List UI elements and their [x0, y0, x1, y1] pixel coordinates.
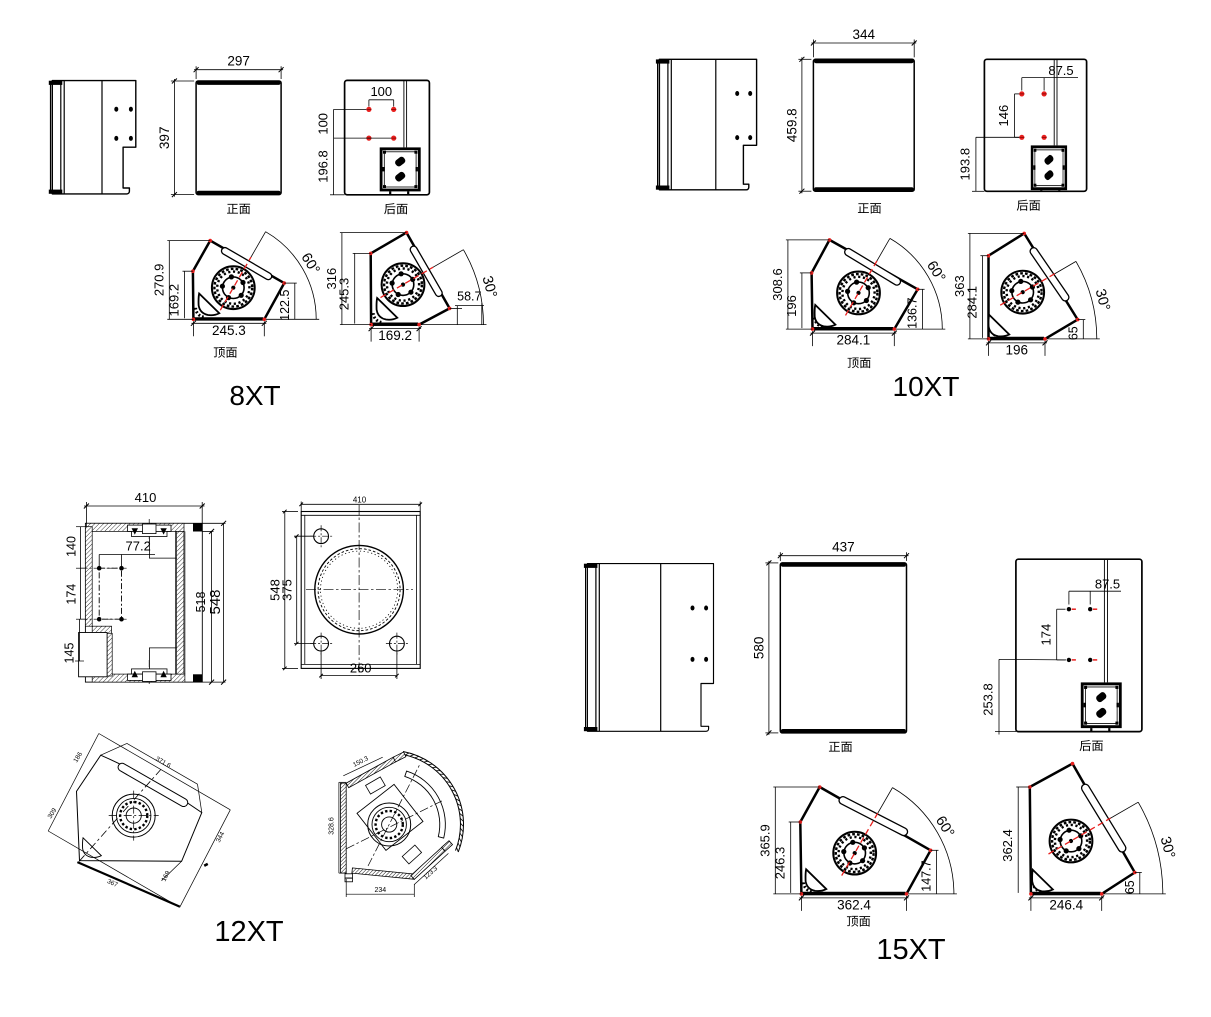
- svg-text:169.2: 169.2: [378, 328, 412, 343]
- svg-text:147.7: 147.7: [920, 860, 934, 891]
- svg-text:548: 548: [207, 589, 224, 614]
- svg-text:169.2: 169.2: [167, 284, 182, 317]
- svg-text:397: 397: [157, 127, 172, 150]
- svg-text:87.5: 87.5: [1095, 576, 1120, 591]
- svg-text:410: 410: [135, 490, 157, 505]
- svg-text:196: 196: [784, 295, 799, 317]
- svg-text:146: 146: [996, 105, 1011, 127]
- svg-text:246.4: 246.4: [1049, 897, 1083, 912]
- svg-text:140: 140: [64, 536, 78, 557]
- svg-text:284.1: 284.1: [964, 286, 979, 319]
- svg-text:580: 580: [751, 637, 766, 660]
- svg-text:365.9: 365.9: [757, 824, 772, 857]
- svg-text:284.1: 284.1: [837, 333, 871, 348]
- svg-text:196: 196: [1006, 342, 1029, 357]
- svg-text:12XT: 12XT: [214, 916, 284, 948]
- svg-text:65: 65: [1123, 880, 1137, 894]
- svg-text:308.6: 308.6: [770, 268, 785, 301]
- svg-text:87.5: 87.5: [1048, 63, 1073, 78]
- svg-text:174: 174: [64, 584, 78, 605]
- svg-text:297: 297: [227, 54, 250, 69]
- svg-text:145: 145: [62, 643, 76, 664]
- svg-text:196.8: 196.8: [315, 150, 330, 183]
- svg-text:77.2: 77.2: [126, 538, 151, 553]
- svg-text:246.3: 246.3: [773, 847, 788, 880]
- svg-text:344: 344: [853, 27, 876, 42]
- svg-text:65: 65: [1066, 326, 1080, 340]
- svg-text:245.3: 245.3: [212, 323, 246, 338]
- svg-text:362.4: 362.4: [1000, 829, 1015, 862]
- svg-text:362.4: 362.4: [837, 897, 871, 912]
- svg-text:234: 234: [374, 887, 386, 894]
- svg-text:260: 260: [350, 661, 372, 676]
- svg-text:437: 437: [832, 540, 855, 555]
- svg-text:270.9: 270.9: [151, 264, 166, 297]
- svg-text:328.6: 328.6: [329, 817, 336, 835]
- svg-text:58.7: 58.7: [457, 290, 481, 304]
- svg-text:459.8: 459.8: [784, 108, 799, 142]
- svg-text:245.3: 245.3: [337, 278, 352, 311]
- svg-text:100: 100: [370, 84, 392, 99]
- svg-text:122.5: 122.5: [278, 290, 292, 321]
- svg-text:253.8: 253.8: [981, 683, 996, 716]
- svg-text:136.7: 136.7: [906, 298, 920, 329]
- svg-text:193.8: 193.8: [958, 148, 973, 181]
- svg-text:15XT: 15XT: [876, 934, 946, 966]
- svg-text:100: 100: [315, 113, 330, 135]
- svg-text:375: 375: [280, 579, 295, 601]
- svg-text:410: 410: [353, 495, 367, 504]
- svg-text:8XT: 8XT: [229, 380, 280, 411]
- svg-text:10XT: 10XT: [893, 371, 960, 402]
- svg-text:174: 174: [1038, 624, 1053, 646]
